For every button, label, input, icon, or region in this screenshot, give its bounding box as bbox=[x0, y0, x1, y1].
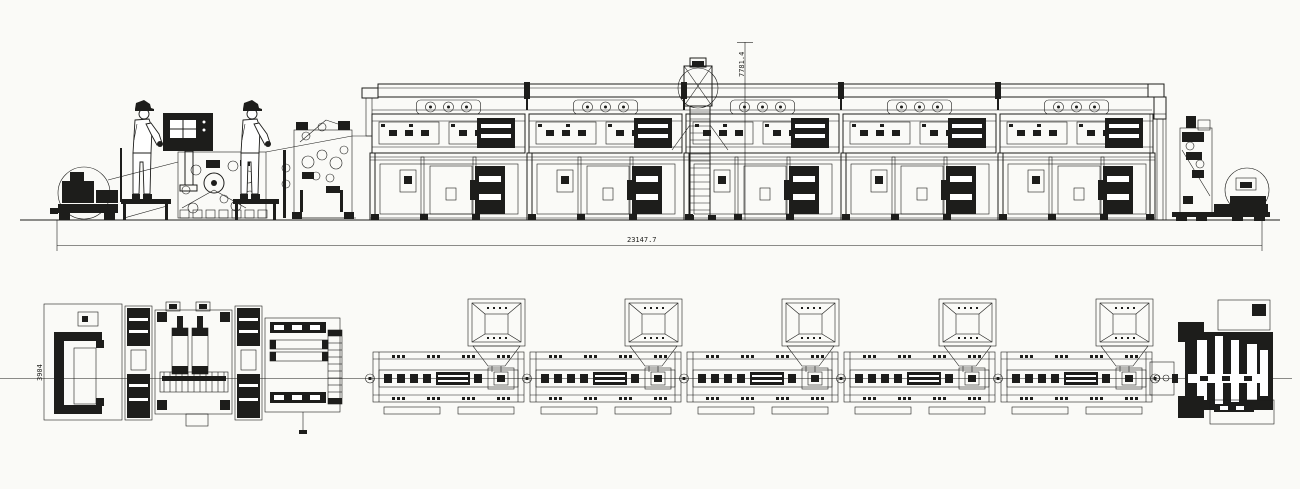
walkway-platform-plan-2 bbox=[235, 306, 262, 420]
plan-view bbox=[0, 299, 1292, 434]
oven-module-plan-4 bbox=[844, 299, 996, 414]
production-line-drawing bbox=[0, 0, 1300, 489]
dryer-oven-elevation bbox=[370, 100, 1155, 220]
total-length-dimension bbox=[57, 220, 1262, 251]
oven-module-plan-1 bbox=[373, 299, 525, 414]
roof-vent-ports bbox=[574, 100, 638, 114]
oven-module-plan-5 bbox=[1001, 299, 1153, 414]
hopper-2 bbox=[625, 299, 682, 372]
oven-module-plan-3 bbox=[687, 299, 839, 414]
coating-station-2 bbox=[282, 120, 356, 219]
roof-vent-ports bbox=[1045, 100, 1109, 114]
roof-vent-ports bbox=[731, 100, 795, 114]
hopper-4 bbox=[939, 299, 996, 372]
dimension-label-machine-height: 7781.4 bbox=[738, 52, 746, 77]
rewinder-elevation bbox=[1172, 116, 1270, 221]
hopper-5 bbox=[1096, 299, 1153, 372]
coating-station-2-plan bbox=[265, 318, 342, 434]
elevation-view bbox=[20, 42, 1280, 251]
oven-module-3 bbox=[684, 100, 841, 220]
operator-2 bbox=[240, 100, 271, 200]
coating-station-1-plan bbox=[155, 302, 232, 426]
cad-drawing-canvas: 23147.7 7781.4 3904 bbox=[0, 0, 1300, 489]
hopper-3 bbox=[782, 299, 839, 372]
operator-1 bbox=[132, 100, 163, 200]
oven-module-1 bbox=[370, 100, 527, 220]
dimension-label-total-length: 23147.7 bbox=[627, 236, 657, 244]
oven-module-4 bbox=[841, 100, 998, 220]
roof-vent-ports bbox=[417, 100, 481, 114]
unwinder-plan bbox=[44, 304, 122, 420]
dimension-label-machine-width: 3904 bbox=[36, 364, 44, 381]
dryer-oven-plan bbox=[373, 299, 1153, 414]
roof-vent-ports bbox=[888, 100, 952, 114]
unwinder-elevation bbox=[50, 167, 118, 220]
oven-module-plan-2 bbox=[530, 299, 682, 414]
exhaust-stack bbox=[678, 58, 718, 108]
access-ladder bbox=[672, 106, 728, 220]
rewinder-plan bbox=[1150, 300, 1274, 424]
oven-module-2 bbox=[527, 100, 684, 220]
oven-module-5 bbox=[998, 100, 1155, 220]
hopper-1 bbox=[468, 299, 525, 372]
walkway-platform-plan-1 bbox=[125, 306, 152, 420]
